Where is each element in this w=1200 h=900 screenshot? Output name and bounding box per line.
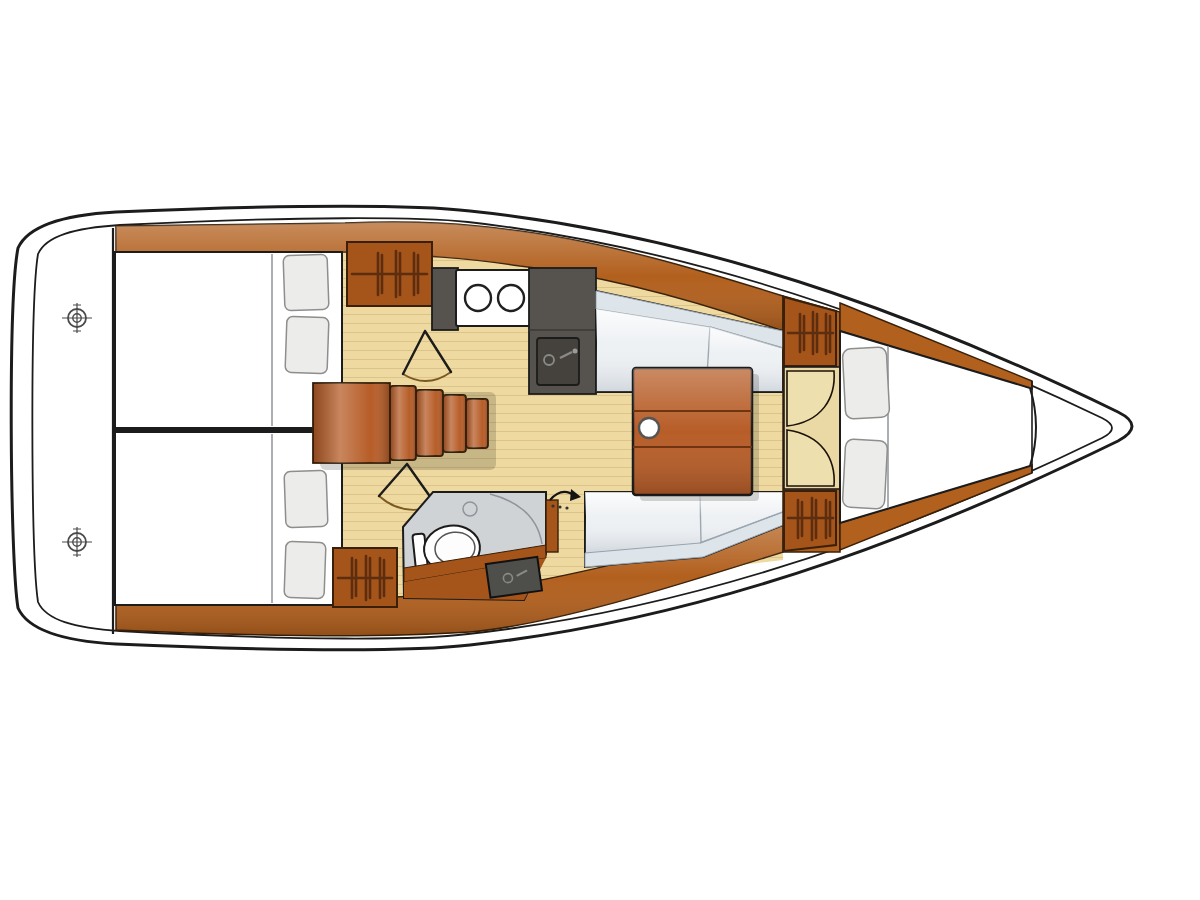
head-compartment (403, 492, 546, 600)
burner-icon (498, 285, 524, 311)
saloon-table (633, 368, 759, 501)
aft-cabin-port (115, 252, 342, 428)
hanging-locker (347, 242, 432, 306)
head-door (546, 500, 558, 552)
pillow (285, 316, 329, 373)
pillow (842, 439, 888, 509)
hanging-locker (333, 548, 397, 607)
hanging-locker (784, 491, 836, 551)
companionway-steps (313, 383, 496, 470)
burner-icon (465, 285, 491, 311)
boat-floor-plan (0, 0, 1200, 900)
pillow (283, 254, 329, 311)
aft-cabin-starboard (115, 432, 342, 605)
mast-post (639, 418, 659, 438)
pillow (842, 347, 890, 419)
head-vanity-sink (486, 557, 542, 598)
pillow (284, 470, 328, 527)
pillow (284, 541, 326, 598)
galley-counter-left (432, 268, 458, 330)
forward-bulkhead (783, 296, 840, 552)
boat-floor-plan-canvas (0, 0, 1200, 900)
